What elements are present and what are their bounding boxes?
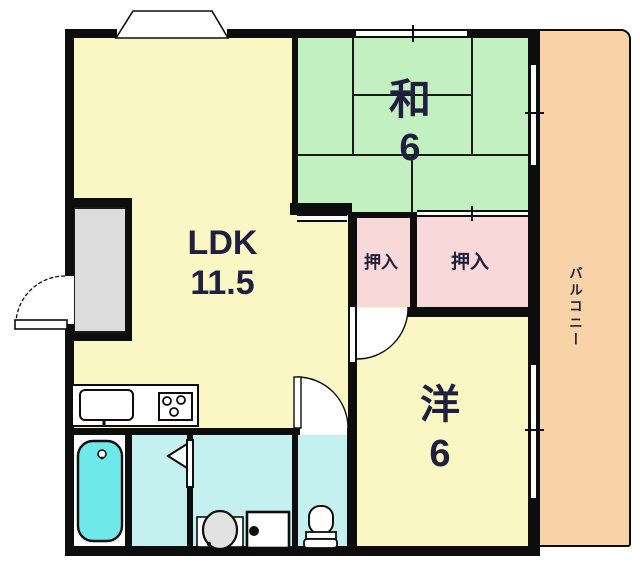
floor-plan: LDK 11.5 和 6 洋 6 押入 押入 バルコニー [0,0,640,564]
fixture-overlay [0,0,640,564]
oshiire-left-label: 押入 [351,254,411,271]
washroom-door-triangle [168,444,187,468]
basin-drain [207,542,211,546]
washitsu-size: 6 [365,129,455,167]
burner [177,396,185,404]
bath-faucet-dot [101,457,104,460]
washing-machine-valve [249,526,259,536]
toilet-door-swing [297,377,348,428]
toilet-icon [309,506,333,534]
toilet-seat [306,532,336,539]
ldk-size: 11.5 [140,266,305,300]
balcony-label: バルコニー [563,227,581,387]
burner [170,408,178,416]
washitsu-label: 和 [365,79,455,121]
toilet-base [304,539,337,548]
youshitsu-door-swing [357,308,408,359]
entrance-door-arc [16,276,65,322]
ldk-label: LDK [140,226,305,260]
oshiire-right-label: 押入 [418,253,522,272]
entrance-door-leaf [15,320,67,329]
youshitsu-label: 洋 [395,385,485,425]
toilet-door-leaf [294,377,301,428]
burner [163,397,171,405]
youshitsu-size: 6 [395,435,485,473]
bay-window [116,11,228,38]
sink-icon [80,390,133,420]
